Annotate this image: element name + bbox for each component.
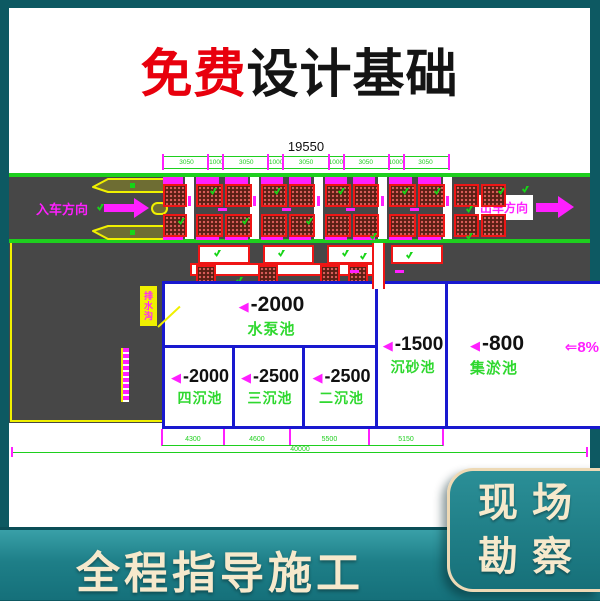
- bay-pad: [418, 177, 441, 184]
- yellow-left-edge: [10, 243, 12, 422]
- bay-pad: [289, 177, 311, 184]
- bay-block: [418, 184, 445, 207]
- corner-card: 现场 勘察: [447, 468, 600, 592]
- bay-block: [225, 184, 252, 207]
- bay-block: [454, 214, 479, 237]
- dimension-segment-label: 3050: [403, 157, 448, 168]
- flow-arrow-icon: [282, 208, 291, 211]
- dimension-segment-label: 1000: [388, 157, 403, 168]
- bay-pad: [353, 177, 375, 184]
- pool-depth: ◀-1500: [383, 334, 444, 356]
- bay-block: [196, 214, 223, 237]
- exit-arrow-icon: [536, 203, 558, 212]
- flow-arrow-icon: [346, 208, 355, 211]
- bay-block: [163, 214, 187, 237]
- dimension-segment-label: 3050: [164, 157, 209, 168]
- exit-arrow-head-icon: [558, 196, 574, 218]
- dimension-tick: [162, 154, 164, 170]
- pool-depth: ◀-2000: [171, 366, 229, 387]
- bay-block: [289, 184, 315, 207]
- dimension-line-total: [11, 452, 588, 453]
- dimension-segment-label: 1000: [329, 157, 344, 168]
- pool-third-settling: ◀-2500 三沉池: [232, 345, 308, 429]
- depth-marker-icon: ◀: [312, 370, 322, 385]
- bay-channel: [378, 177, 387, 239]
- pool-name: 二沉池: [319, 388, 364, 408]
- dimension-total-top: 19550: [163, 139, 449, 154]
- dimension-tick: [207, 154, 209, 170]
- callout-label: 排水沟: [142, 291, 155, 321]
- pool-depth: ◀-2000: [239, 293, 305, 317]
- dimension-segment-label: 5500: [309, 436, 349, 443]
- page-title: 免费设计基础: [9, 44, 590, 106]
- dimension-tick: [282, 154, 284, 170]
- flow-arrow-icon: [446, 196, 449, 206]
- pool-name: 三沉池: [248, 388, 293, 408]
- pool-name: 集淤池: [470, 357, 518, 378]
- dimension-segment-label: 3050: [343, 157, 388, 168]
- entry-direction-label: 入车方向: [36, 199, 88, 218]
- dimension-segment-label: 5150: [386, 436, 426, 443]
- banner-text: 全程指导施工: [0, 537, 440, 601]
- bay-pad: [163, 177, 183, 184]
- flow-arrow-icon: [218, 208, 227, 211]
- flow-arrow-icon: [381, 196, 384, 206]
- depth-marker-icon: ◀: [239, 299, 249, 314]
- dimension-segment-label: 4300: [173, 436, 213, 443]
- pool-name: 水泵池: [247, 318, 295, 339]
- bay-pad: [325, 177, 347, 184]
- depth-marker-icon: ◀: [241, 370, 251, 385]
- yellow-bottom-edge: [10, 420, 164, 422]
- flow-arrow-icon: [317, 196, 320, 206]
- bay-block: [353, 184, 379, 207]
- lane-island-markings: [90, 176, 170, 242]
- bay-pad: [261, 177, 283, 184]
- pool-fourth-settling: ◀-2000 四沉池: [162, 345, 238, 429]
- slope-label: ⇐8%: [565, 338, 599, 356]
- pool-depth: ◀-800: [470, 332, 524, 356]
- dimension-tick: [267, 154, 269, 170]
- dimension-tick: [403, 154, 405, 170]
- pool-name: 沉砂池: [391, 357, 436, 377]
- dimension-tick: [328, 154, 330, 170]
- bay-pad: [196, 177, 219, 184]
- depth-marker-icon: ◀: [383, 338, 393, 353]
- bay-block: [481, 184, 506, 207]
- dimension-tick: [11, 447, 13, 457]
- pool-depth: ◀-2500: [241, 366, 299, 387]
- bay-block: [325, 214, 351, 237]
- drain-trough: [327, 245, 378, 264]
- flow-arrow-icon: [395, 270, 404, 273]
- pool-name: 四沉池: [178, 388, 223, 408]
- bay-block: [225, 214, 252, 237]
- dimension-tick: [368, 429, 370, 446]
- bay-channel: [314, 177, 323, 239]
- bay-block: [261, 184, 287, 207]
- flow-arrow-icon: [253, 196, 256, 206]
- bay-pad: [389, 177, 412, 184]
- dimension-line: [162, 445, 443, 446]
- bay-block: [481, 214, 506, 237]
- bay-block: [389, 184, 416, 207]
- callout-label-box: 排水沟: [140, 286, 157, 326]
- title-rest: 设计基础: [247, 46, 459, 104]
- pool-second-settling: ◀-2500 二沉池: [302, 345, 381, 429]
- drain-grate: [121, 348, 129, 402]
- bay-block: [325, 184, 351, 207]
- flow-arrow-icon: [188, 196, 191, 206]
- pool-pump: ◀-2000 水泵池: [162, 281, 381, 351]
- dimension-tick: [161, 429, 163, 446]
- pool-sand-settling: ◀-1500 沉砂池: [375, 281, 451, 429]
- bay-block: [454, 184, 479, 207]
- dimension-tick: [586, 447, 588, 457]
- corner-card-line1: 现场: [464, 476, 586, 530]
- dimension-tick: [442, 429, 444, 446]
- flow-arrow-icon: [350, 270, 359, 273]
- corner-card-line2: 勘察: [464, 530, 586, 584]
- bay-block: [289, 214, 315, 237]
- dimension-tick: [222, 154, 224, 170]
- bay-block: [261, 214, 287, 237]
- dimension-segment-label: 3050: [284, 157, 329, 168]
- pool-depth: ◀-2500: [312, 366, 370, 387]
- bay-block: [389, 214, 416, 237]
- dimension-segment-label: 1000: [269, 157, 284, 168]
- drain-trough: [263, 245, 314, 264]
- bay-block: [418, 214, 445, 237]
- dimension-segment-label: 4600: [237, 436, 277, 443]
- dimension-line-top: 305010003050100030501000305010003050: [163, 156, 449, 169]
- dimension-tick: [388, 154, 390, 170]
- dimension-tick: [448, 154, 450, 170]
- dimension-tick: [343, 154, 345, 170]
- bay-block: [163, 184, 187, 207]
- flow-arrow-icon: [410, 208, 419, 211]
- dimension-tick: [223, 429, 225, 446]
- dimension-segment-label: 3050: [224, 157, 269, 168]
- pool-sludge-collect: ◀-800 集淤池 ⇐8%: [445, 281, 600, 429]
- bay-pad: [225, 177, 248, 184]
- depth-marker-icon: ◀: [470, 338, 480, 353]
- drain-trough: [391, 245, 443, 264]
- drain-channel-vertical: [372, 243, 385, 289]
- depth-marker-icon: ◀: [171, 370, 181, 385]
- bay-block: [196, 184, 223, 207]
- drain-trough: [198, 245, 250, 264]
- dimension-tick: [289, 429, 291, 446]
- title-highlight: 免费: [140, 46, 246, 104]
